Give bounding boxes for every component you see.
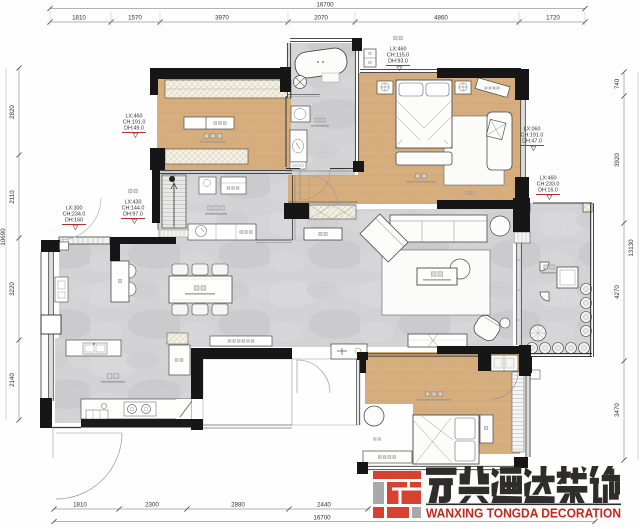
svg-text:13130: 13130 bbox=[628, 239, 635, 257]
svg-text:3220: 3220 bbox=[9, 282, 16, 296]
svg-text:3970: 3970 bbox=[215, 15, 229, 22]
svg-text:2110: 2110 bbox=[9, 190, 16, 204]
svg-text:4860: 4860 bbox=[434, 15, 448, 22]
svg-text:16700: 16700 bbox=[313, 515, 331, 522]
svg-text:1570: 1570 bbox=[128, 15, 142, 22]
svg-text:DH:160: DH:160 bbox=[65, 218, 83, 224]
svg-text:1810: 1810 bbox=[73, 502, 87, 509]
svg-text:2070: 2070 bbox=[314, 15, 328, 22]
svg-text:DH:47.0: DH:47.0 bbox=[522, 139, 542, 145]
svg-text:DH:97.0: DH:97.0 bbox=[123, 212, 143, 218]
svg-text:2140: 2140 bbox=[9, 373, 16, 387]
svg-text:16700: 16700 bbox=[316, 2, 334, 9]
svg-text:2440: 2440 bbox=[317, 502, 331, 509]
svg-text:DH:93.0: DH:93.0 bbox=[388, 59, 408, 65]
svg-text:2300: 2300 bbox=[145, 502, 159, 509]
svg-text:740: 740 bbox=[614, 78, 621, 89]
svg-text:WANXING TONGDA DECORATION: WANXING TONGDA DECORATION bbox=[426, 506, 621, 521]
svg-text:2880: 2880 bbox=[231, 502, 245, 509]
svg-text:DH:49.0: DH:49.0 bbox=[124, 126, 144, 132]
svg-text:4270: 4270 bbox=[614, 285, 621, 299]
svg-text:3470: 3470 bbox=[614, 403, 621, 417]
svg-text:10690: 10690 bbox=[0, 228, 7, 246]
svg-text:2820: 2820 bbox=[9, 105, 16, 119]
svg-text:3920: 3920 bbox=[614, 153, 621, 167]
svg-text:1810: 1810 bbox=[72, 15, 86, 22]
svg-text:1720: 1720 bbox=[546, 15, 560, 22]
svg-text:DH:16.0: DH:16.0 bbox=[538, 188, 558, 194]
